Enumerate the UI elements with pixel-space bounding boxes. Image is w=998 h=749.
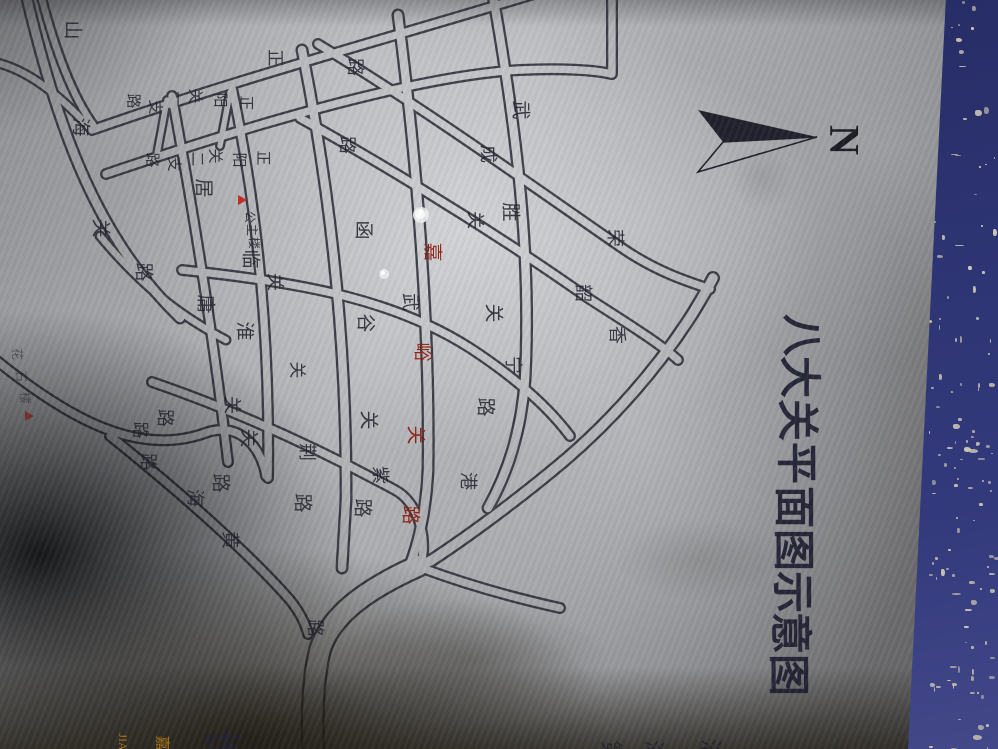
paint-wear-speckle (944, 463, 947, 468)
paint-wear-speckle (979, 503, 983, 507)
paint-wear-speckle (954, 484, 958, 487)
paint-wear-speckle (994, 557, 998, 560)
paint-wear-speckle (953, 424, 959, 429)
paint-wear-speckle (936, 577, 938, 580)
paint-wear-speckle (984, 107, 989, 114)
paint-wear-speckle (981, 225, 983, 227)
paint-wear-speckle (929, 746, 933, 748)
paint-wear-speckle (966, 440, 968, 444)
paint-wear-speckle (969, 449, 978, 452)
paint-wear-speckle (988, 481, 991, 483)
paint-wear-speckle (947, 680, 951, 682)
paint-wear-speckle (974, 194, 978, 196)
paint-wear-speckle (936, 406, 940, 408)
paint-wear-speckle (950, 666, 957, 669)
paint-wear-speckle (982, 480, 984, 483)
map-sign-photo: 八大关平面图示意图 八大关平面图示意图N山海关路正阳关一支路正阳关二支路居庸路临… (0, 0, 998, 749)
paint-wear-speckle (942, 235, 945, 240)
paint-wear-speckle (947, 296, 949, 298)
paint-wear-speckle (968, 487, 973, 489)
paint-wear-speckle (959, 50, 965, 54)
paint-wear-speckle (986, 724, 989, 727)
road-lines (0, 0, 998, 749)
paint-wear-speckle (958, 24, 960, 26)
paint-wear-speckle (987, 566, 989, 568)
paint-wear-speckle (934, 687, 936, 692)
paint-wear-speckle (976, 317, 980, 320)
paint-wear-speckle (970, 692, 975, 694)
paint-wear-speckle (993, 229, 997, 236)
paint-wear-speckle (971, 676, 974, 681)
paint-wear-speckle (972, 669, 974, 675)
paint-wear-speckle (968, 266, 972, 270)
paint-wear-speckle (985, 164, 987, 166)
paint-wear-speckle (958, 666, 960, 672)
paint-wear-speckle (929, 574, 933, 576)
paint-wear-speckle (978, 458, 984, 461)
paint-wear-speckle (973, 520, 975, 522)
paint-wear-speckle (990, 657, 995, 659)
paint-wear-speckle (952, 593, 961, 595)
paint-wear-speckle (980, 588, 982, 591)
paint-wear-speckle (973, 735, 982, 740)
paint-wear-speckle (932, 562, 934, 565)
paint-wear-speckle (937, 255, 943, 257)
paint-wear-speckle (975, 110, 982, 116)
paint-wear-speckle (946, 568, 949, 570)
paint-wear-speckle (990, 490, 992, 492)
paint-wear-speckle (979, 166, 981, 168)
paint-wear-speckle (965, 609, 972, 611)
paint-wear-speckle (951, 391, 953, 393)
paint-wear-speckle (957, 478, 959, 480)
paint-wear-speckle (978, 388, 980, 391)
paint-wear-speckle (990, 589, 995, 593)
paint-wear-speckle (960, 383, 962, 386)
paint-wear-speckle (965, 642, 967, 644)
paint-wear-speckle (938, 454, 941, 456)
paint-wear-speckle (978, 725, 984, 730)
paint-wear-speckle (964, 626, 969, 628)
paint-wear-speckle (939, 318, 941, 320)
paint-wear-speckle (932, 480, 935, 485)
paint-wear-speckle (948, 549, 952, 551)
paint-wear-speckle (989, 573, 995, 575)
paint-wear-speckle (982, 271, 985, 274)
paint-wear-speckle (955, 245, 964, 247)
paint-wear-speckle (955, 441, 957, 445)
paint-wear-speckle (960, 336, 962, 343)
paint-wear-speckle (972, 6, 975, 11)
paint-wear-speckle (959, 66, 965, 68)
paint-wear-speckle (989, 383, 995, 387)
paint-wear-speckle (953, 685, 955, 689)
paint-wear-speckle (939, 325, 941, 330)
paint-wear-speckle (954, 467, 956, 469)
paint-wear-speckle (986, 445, 990, 448)
map-road-network (0, 0, 998, 749)
paint-wear-speckle (951, 27, 953, 29)
paint-wear-speckle (960, 459, 962, 461)
paint-wear-speckle (978, 383, 981, 388)
paint-wear-speckle (981, 695, 983, 699)
paint-wear-speckle (972, 430, 975, 433)
paint-wear-speckle (957, 528, 959, 533)
paint-wear-speckle (977, 692, 979, 694)
paint-wear-speckle (958, 719, 961, 721)
paint-wear-speckle (958, 418, 961, 421)
paint-wear-speckle (956, 517, 958, 519)
paint-wear-speckle (962, 1, 965, 4)
paint-wear-speckle (969, 581, 975, 585)
paint-wear-speckle (994, 157, 996, 159)
paint-wear-speckle (971, 436, 973, 438)
paint-wear-speckle (963, 118, 967, 120)
paint-wear-speckle (971, 600, 977, 606)
paint-wear-speckle (991, 453, 993, 455)
paint-wear-speckle (936, 686, 941, 688)
paint-wear-speckle (952, 574, 955, 577)
paint-wear-speckle (988, 353, 991, 355)
paint-wear-speckle (932, 493, 936, 495)
paint-wear-speckle (989, 676, 995, 679)
paint-wear-speckle (956, 38, 962, 42)
paint-wear-speckle (935, 557, 937, 560)
paint-wear-speckle (990, 339, 992, 343)
paint-wear-speckle (929, 431, 931, 434)
paint-wear-speckle (941, 569, 944, 575)
paint-wear-speckle (973, 286, 975, 292)
paint-wear-speckle (931, 387, 934, 389)
paint-wear-speckle (971, 646, 973, 649)
paint-wear-speckle (985, 641, 987, 645)
paint-wear-speckle (955, 338, 957, 342)
paint-wear-speckle (971, 27, 973, 30)
paint-wear-speckle (947, 447, 953, 449)
paint-wear-speckle (939, 374, 941, 380)
paint-wear-speckle (976, 442, 980, 445)
